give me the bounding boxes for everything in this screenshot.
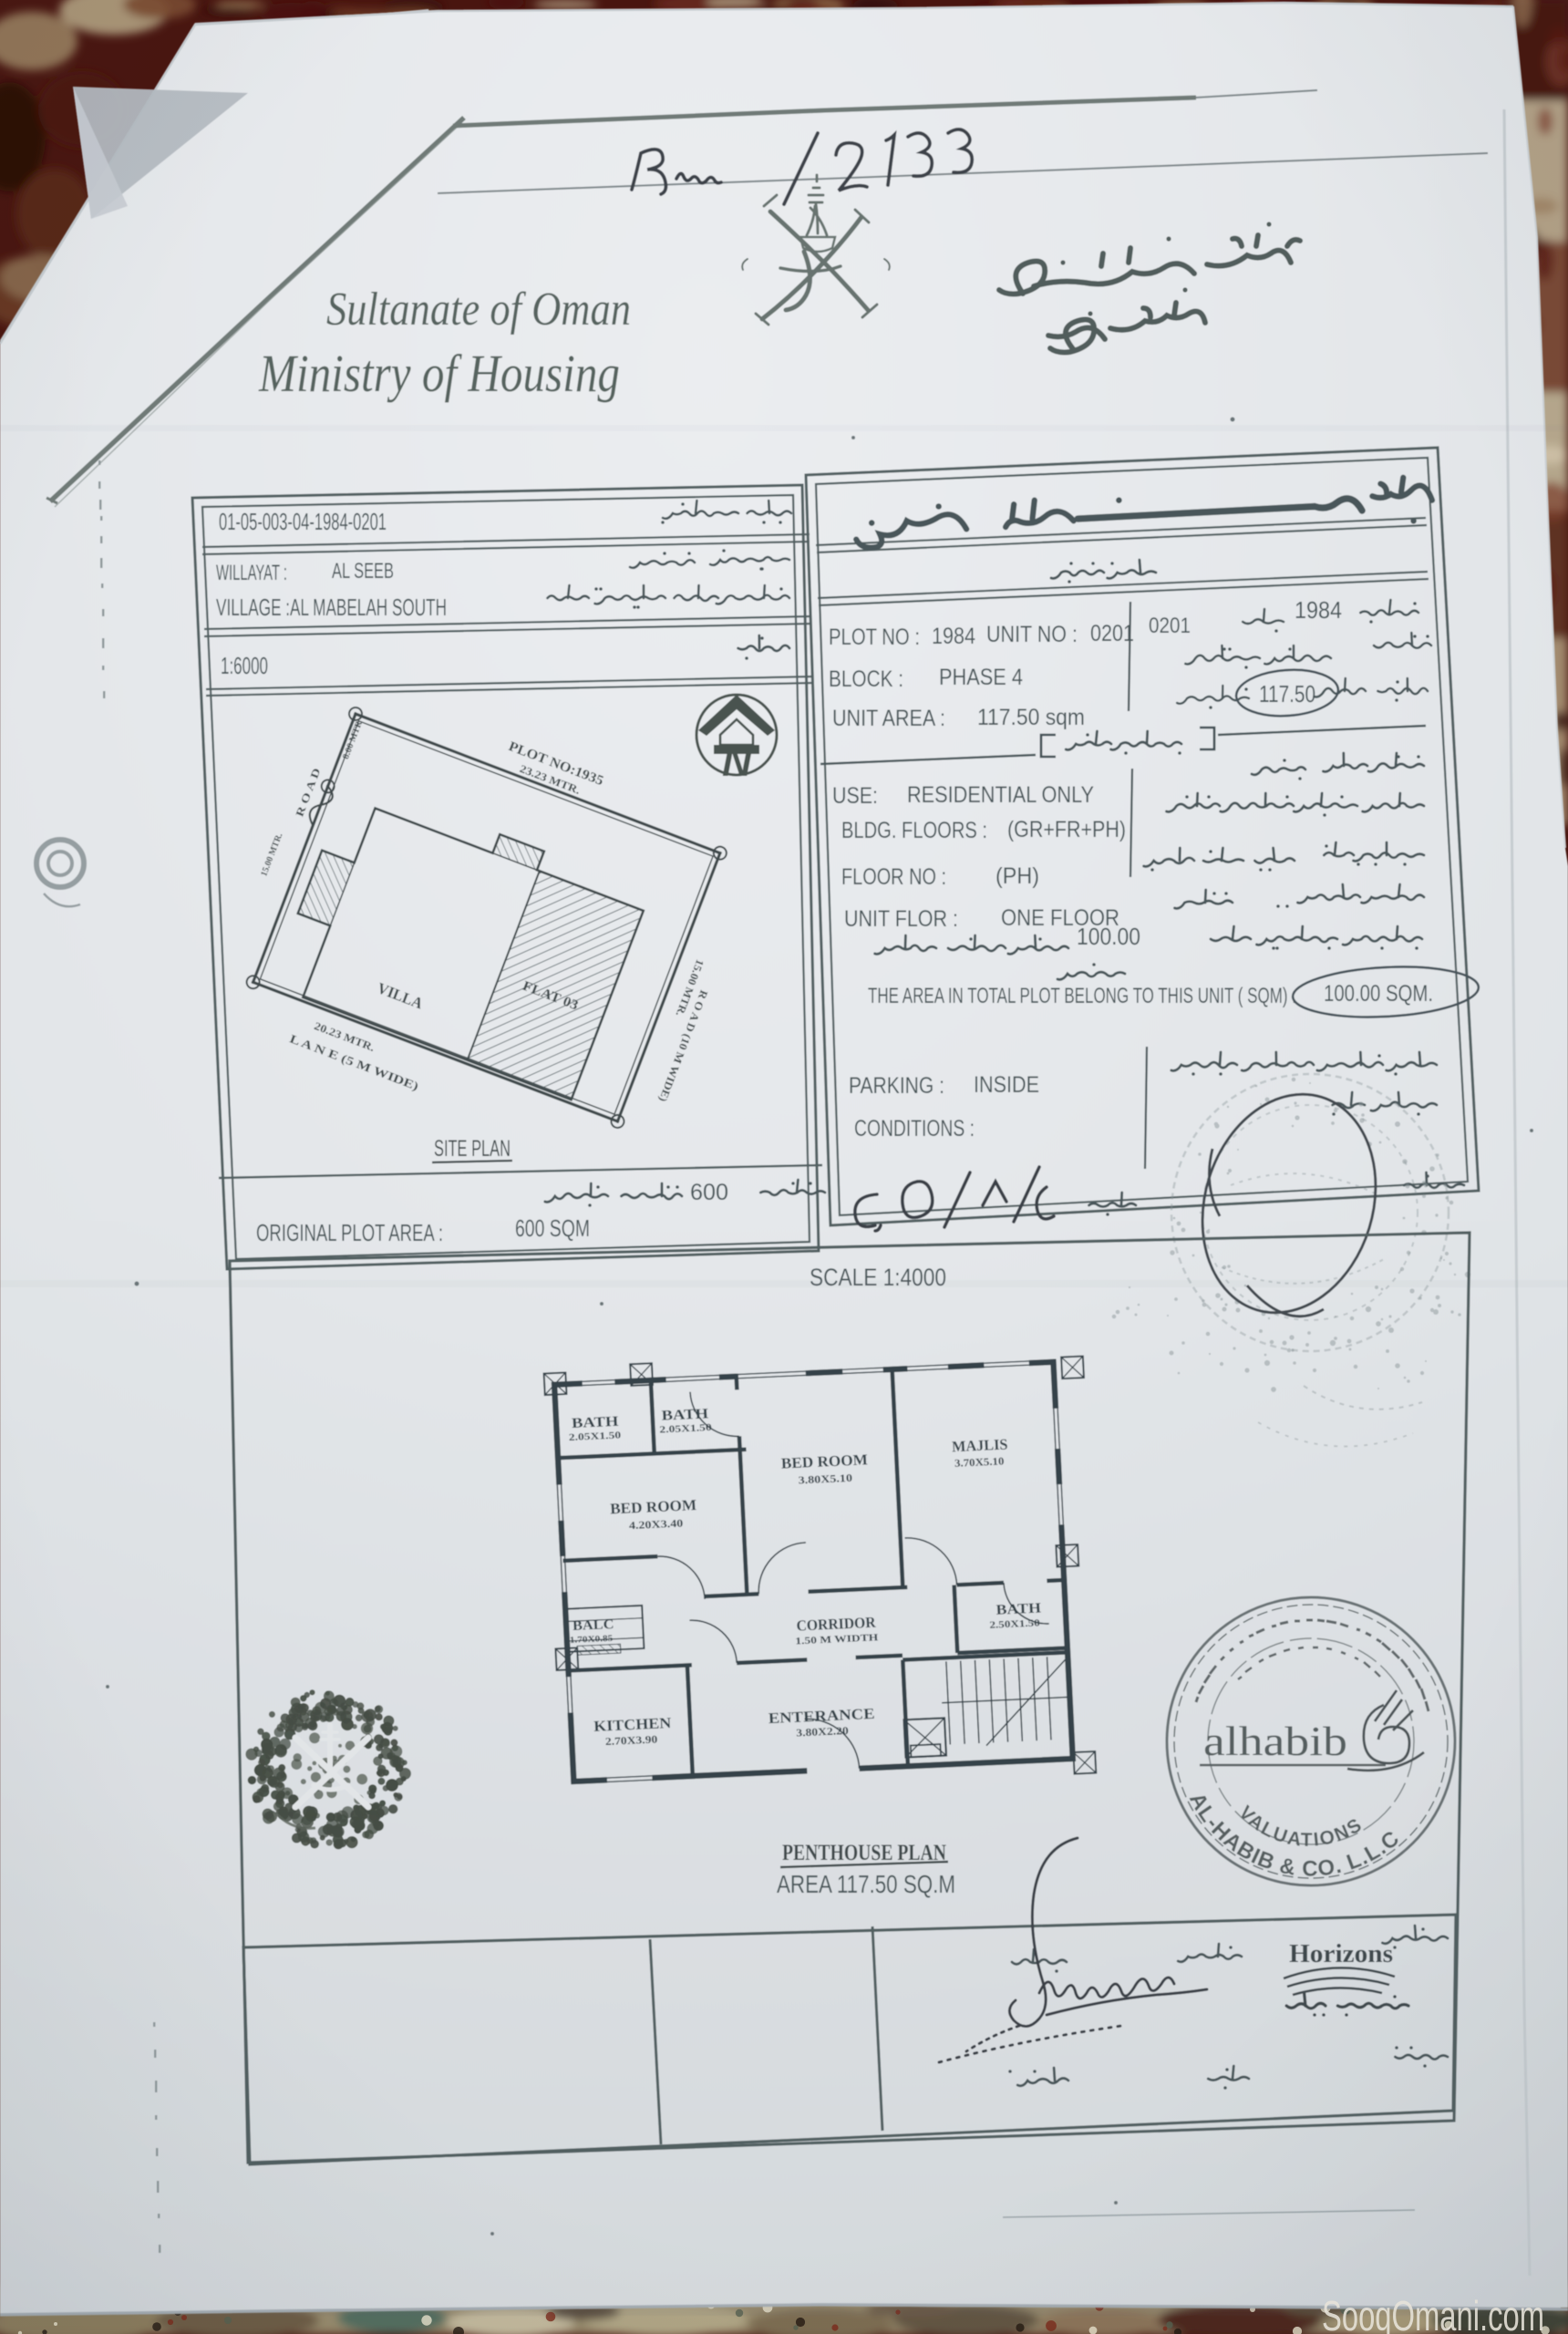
svg-text:SooqOmani.com: SooqOmani.com (1322, 2292, 1544, 2334)
